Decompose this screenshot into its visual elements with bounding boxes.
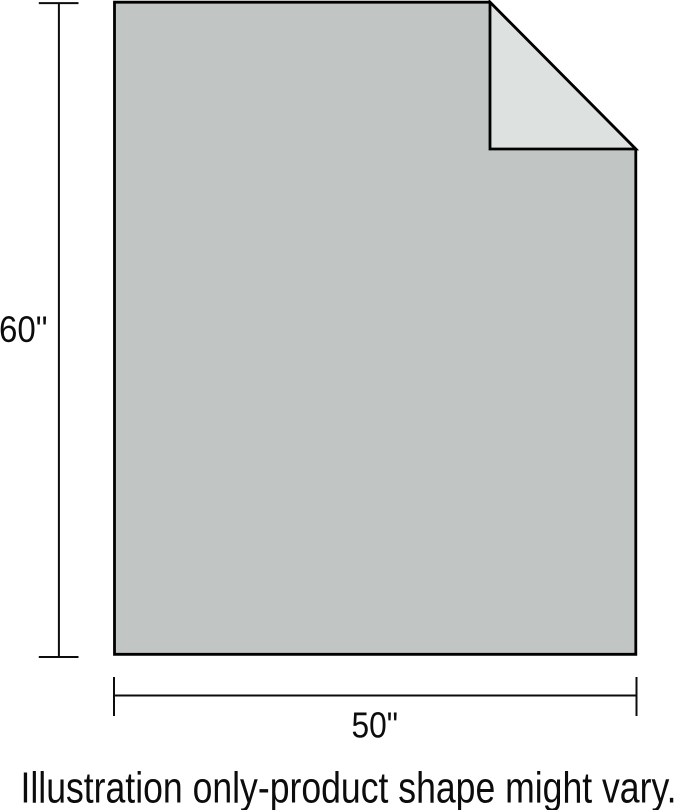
svg-text:Illustration only-product shap: Illustration only-product shape might va… — [21, 765, 677, 810]
svg-text:60": 60" — [0, 308, 48, 350]
svg-text:50": 50" — [352, 704, 399, 745]
